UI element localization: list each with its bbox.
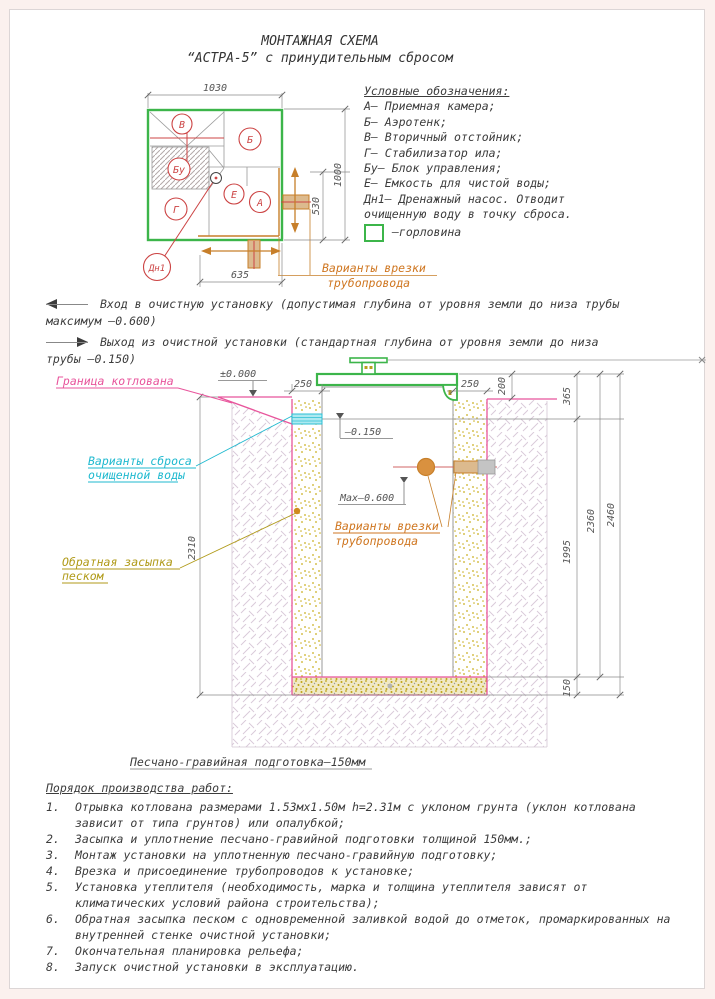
step-line: Запуск очистной установки в эксплуатацию… <box>75 959 698 975</box>
step-line: Обратная засыпка песком с одновременной … <box>75 911 698 927</box>
step-line: Установка утеплителя (необходимость, мар… <box>75 879 698 895</box>
compartment-label-g: Г <box>173 205 180 216</box>
pipe-notes: Вход в очистную установку (допустимая гл… <box>46 296 698 372</box>
compartment-label-dn1: Дн1 <box>148 264 165 274</box>
backfill-label-line2: песком <box>62 569 105 583</box>
legend-neck-label: –горловина <box>392 225 461 240</box>
dim-200: 200 <box>497 377 508 395</box>
gravel-base-layer <box>292 677 487 695</box>
title-line2: “АСТРА-5” с принудительным сбросом <box>60 50 580 67</box>
compartment-label-v: В <box>179 120 185 131</box>
plan-pipe-note-line2: трубопровода <box>327 276 410 290</box>
section-pipe-note-line1: Варианты врезки <box>335 519 439 533</box>
procedure-step: 8. Запуск очистной установки в эксплуата… <box>46 959 698 975</box>
backfill-marker-dot <box>294 508 300 514</box>
section-pipe-note-line2: трубопровода <box>335 534 418 548</box>
level-outlet-text: –0.150 <box>344 427 381 438</box>
note-inlet-line2: максимум –0.600) <box>46 313 698 330</box>
dim-2360: 2360 <box>586 509 597 533</box>
step-text: Запуск очистной установки в эксплуатацию… <box>75 959 698 975</box>
step-line: внутренней стенке очистной установки; <box>75 927 698 943</box>
step-line: зависит от типа грунтов) или опалубкой; <box>75 815 698 831</box>
dim-150: 150 <box>562 679 573 697</box>
step-number: 5. <box>46 879 75 911</box>
backfill-label-line1: Обратная засыпка <box>62 555 173 569</box>
step-text: Обратная засыпка песком с одновременной … <box>75 911 698 943</box>
note-inlet-line1: Вход в очистную установку (допустимая гл… <box>100 296 619 313</box>
note-outlet-line2: трубы –0.150) <box>46 351 698 368</box>
legend-heading: Условные обозначения: <box>364 84 640 99</box>
level-inlet-text: Max–0.600 <box>339 493 394 504</box>
step-number: 7. <box>46 943 75 959</box>
legend-item: Б– Аэротенк; <box>364 115 640 130</box>
legend-item: Бу– Блок управления; <box>364 161 640 176</box>
dim-250-right: 250 <box>461 379 479 390</box>
legend-item: Е– Емкость для чистой воды; <box>364 176 640 191</box>
step-text: Отрывка котлована размерами 1.53мх1.50м … <box>75 799 698 831</box>
step-number: 3. <box>46 847 75 863</box>
compartment-label-bu: Бу <box>173 165 185 176</box>
pit-cross-section: Граница котлована Варианты сброса очищен… <box>56 357 706 769</box>
legend-item: Г– Стабилизатор ила; <box>364 146 640 161</box>
compartment-label-b: Б <box>247 135 253 146</box>
compartment-label-a: А <box>256 198 263 209</box>
legend-item: А– Приемная камера; <box>364 99 640 114</box>
step-line: Монтаж установки на уплотненную песчано-… <box>75 847 698 863</box>
level-mark-zero <box>218 381 267 397</box>
compartment-label-e: Е <box>231 190 237 201</box>
inlet-arrow-icon <box>46 299 88 309</box>
plan-outlet-pipe <box>281 195 311 209</box>
discharge-label-line1: Варианты сброса <box>88 454 192 468</box>
step-line: Отрывка котлована размерами 1.53мх1.50м … <box>75 799 698 815</box>
step-text: Засыпка и уплотнение песчано-гравийной п… <box>75 831 698 847</box>
dim-2310: 2310 <box>187 536 198 560</box>
procedure-step: 4. Врезка и присоединение трубопроводов … <box>46 863 698 879</box>
step-text: Врезка и присоединение трубопроводов к у… <box>75 863 698 879</box>
step-line: климатических условий района строительст… <box>75 895 698 911</box>
drain-pump-symbol <box>211 173 222 184</box>
work-procedure: Порядок производства работ: 1. Отрывка к… <box>46 780 698 975</box>
procedure-heading: Порядок производства работ: <box>46 780 698 796</box>
plan-dim-530: 530 <box>311 197 322 215</box>
procedure-step: 2. Засыпка и уплотнение песчано-гравийно… <box>46 831 698 847</box>
legend-item: очищенную воду в точку сброса. <box>364 207 640 222</box>
step-line: Засыпка и уплотнение песчано-гравийной п… <box>75 831 698 847</box>
step-line: Врезка и присоединение трубопроводов к у… <box>75 863 698 879</box>
procedure-step: 1. Отрывка котлована размерами 1.53мх1.5… <box>46 799 698 831</box>
step-text: Монтаж установки на уплотненную песчано-… <box>75 847 698 863</box>
outlet-pipe-cyan <box>292 414 322 424</box>
legend-item: В– Вторичный отстойник; <box>364 130 640 145</box>
step-number: 6. <box>46 911 75 943</box>
note-outlet: Выход из очистной установки (стандартная… <box>46 334 698 367</box>
base-layer-note: Песчано-гравийная подготовка–150мм <box>129 755 366 769</box>
step-text: Установка утеплителя (необходимость, мар… <box>75 879 698 911</box>
procedure-step: 5. Установка утеплителя (необходимость, … <box>46 879 698 911</box>
step-line: Окончательная планировка рельефа; <box>75 943 698 959</box>
step-number: 4. <box>46 863 75 879</box>
outlet-arrow-icon <box>46 337 88 347</box>
dim-2460: 2460 <box>606 503 617 527</box>
plan-pipe-note-line1: Варианты врезки <box>322 261 426 275</box>
plan-dim-width: 1030 <box>203 83 227 94</box>
discharge-label-line2: очищенной воды <box>88 468 185 482</box>
dim-365: 365 <box>562 387 573 406</box>
plan-dim-635: 635 <box>231 270 249 281</box>
procedure-step: 6. Обратная засыпка песком с одновременн… <box>46 911 698 943</box>
legend-item: Дн1– Дренажный насос. Отводит <box>364 192 640 207</box>
step-number: 8. <box>46 959 75 975</box>
note-outlet-line1: Выход из очистной установки (стандартная… <box>100 334 599 351</box>
step-number: 2. <box>46 831 75 847</box>
dim-1995: 1995 <box>562 540 573 564</box>
legend: Условные обозначения: А– Приемная камера… <box>364 84 640 242</box>
procedure-step: 3. Монтаж установки на уплотненную песча… <box>46 847 698 863</box>
procedure-step: 7. Окончательная планировка рельефа; <box>46 943 698 959</box>
dim-250-left: 250 <box>294 379 312 390</box>
neck-symbol-icon <box>364 224 384 242</box>
drawing-title: МОНТАЖНАЯ СХЕМА “АСТРА-5” с принудительн… <box>60 33 580 67</box>
title-line1: МОНТАЖНАЯ СХЕМА <box>60 33 580 50</box>
note-inlet: Вход в очистную установку (допустимая гл… <box>46 296 698 329</box>
pit-boundary-label: Граница котлована <box>56 374 174 388</box>
step-text: Окончательная планировка рельефа; <box>75 943 698 959</box>
step-number: 1. <box>46 799 75 831</box>
plan-dim-height: 1000 <box>333 163 344 187</box>
legend-neck-row: –горловина <box>364 224 640 242</box>
plan-bottom-pipe <box>248 240 260 269</box>
